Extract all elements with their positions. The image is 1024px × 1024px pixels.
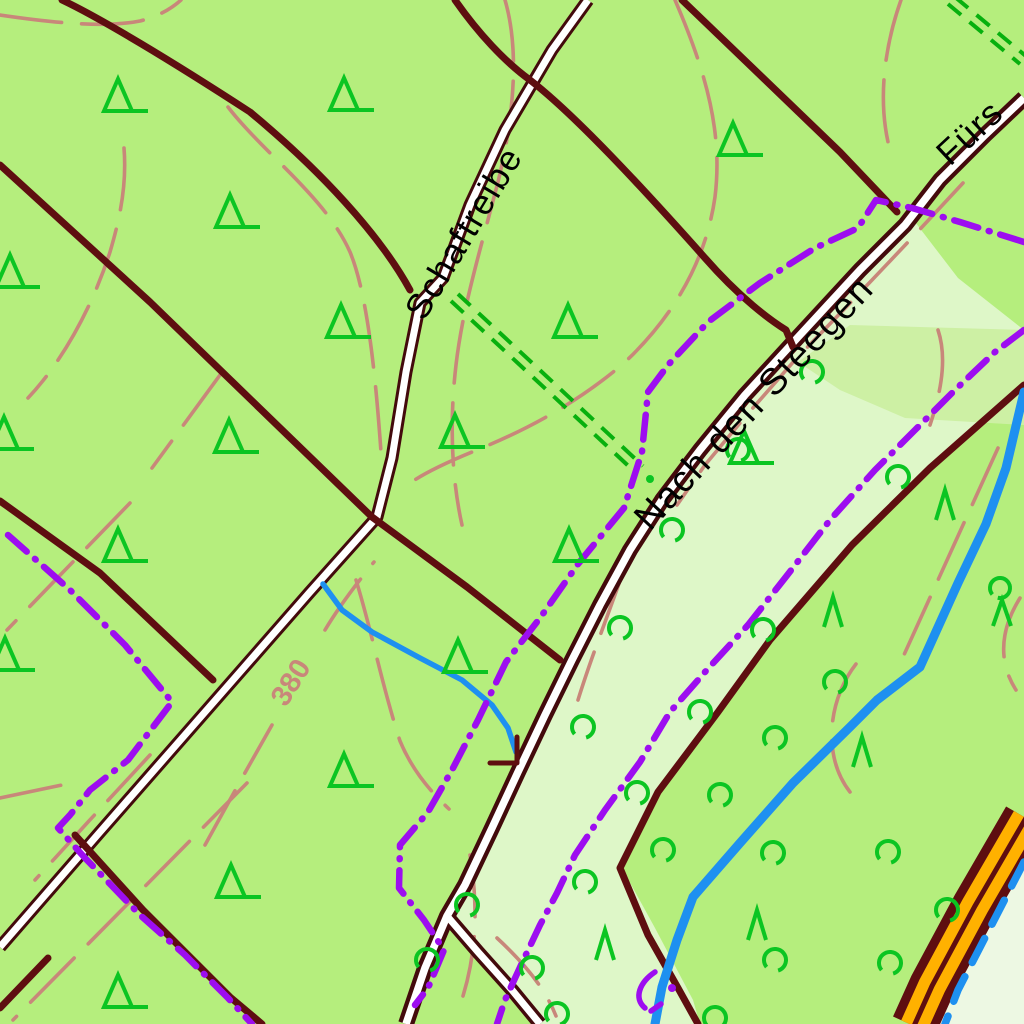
- topo-map-canvas[interactable]: Schaftreibe Nach den Steegen Fürs 380: [0, 0, 1024, 1024]
- firebreak-end-dot: [648, 477, 652, 481]
- boundary-dot: [668, 984, 676, 992]
